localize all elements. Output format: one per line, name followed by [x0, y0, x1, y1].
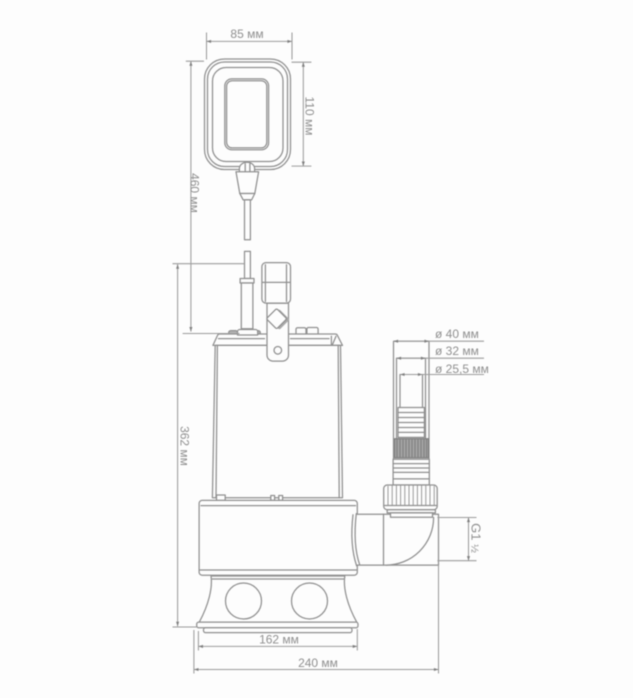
svg-text:85 мм: 85 мм — [230, 27, 263, 41]
svg-text:ø 40 мм: ø 40 мм — [435, 327, 479, 341]
svg-text:460 мм: 460 мм — [188, 173, 202, 213]
svg-text:362 мм: 362 мм — [178, 426, 192, 466]
svg-text:ø 32 мм: ø 32 мм — [435, 344, 479, 358]
svg-text:162 мм: 162 мм — [259, 633, 299, 647]
svg-text:G1 ½: G1 ½ — [469, 523, 484, 553]
svg-text:110 мм: 110 мм — [303, 97, 317, 136]
svg-text:240 мм: 240 мм — [298, 656, 338, 670]
svg-text:ø 25,5 мм: ø 25,5 мм — [435, 362, 489, 376]
